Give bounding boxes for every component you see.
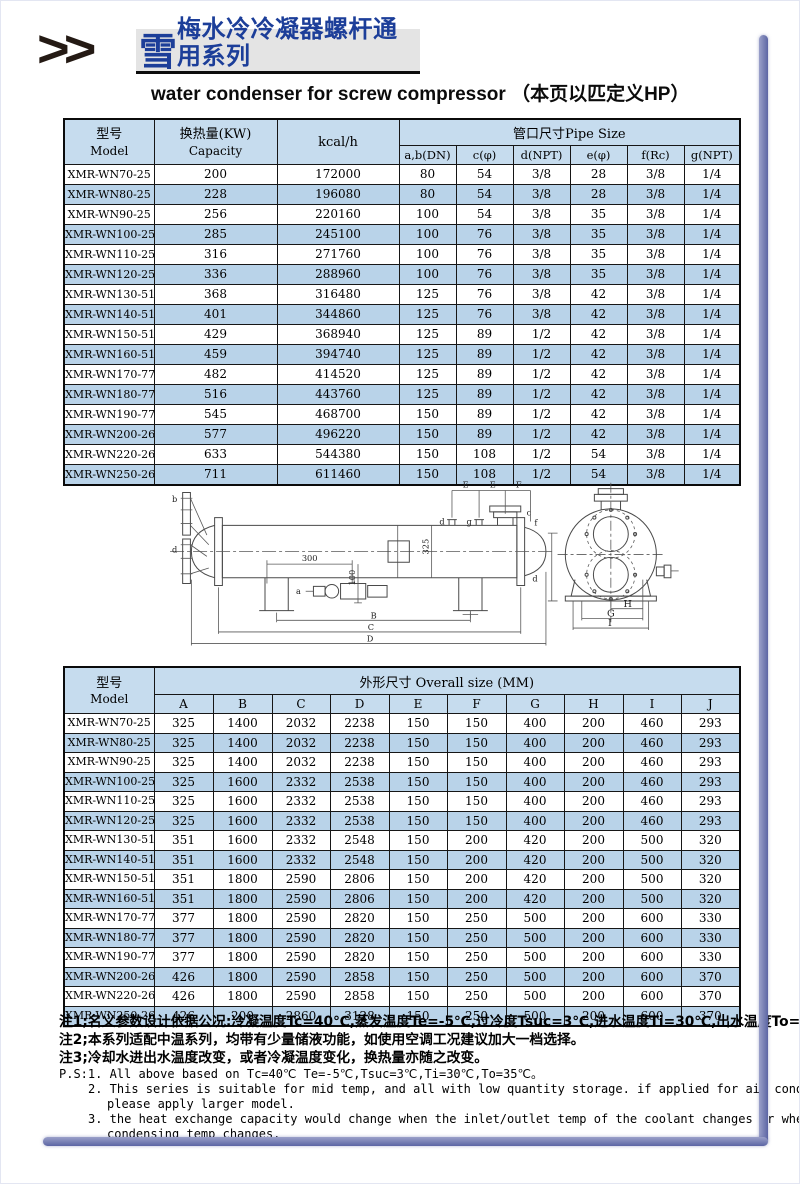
table-cell: 150	[399, 405, 456, 425]
table-cell: XMR-WN100-25	[64, 225, 154, 245]
dim-100: 100	[347, 570, 357, 586]
table-cell: 54	[570, 445, 627, 465]
table-cell: XMR-WN140-51	[64, 305, 154, 325]
brand-character: 雪	[139, 34, 177, 71]
table-cell: 3/8	[627, 185, 684, 205]
table-cell: 2590	[272, 967, 330, 987]
dim-300: 300	[302, 553, 318, 563]
table-cell: XMR-WN110-25	[64, 792, 154, 812]
note-en-3: please apply larger model.	[59, 1097, 753, 1112]
column-header-model: 型号 Model	[64, 119, 154, 165]
table-cell: XMR-WN200-26	[64, 967, 154, 987]
table-cell: 400	[506, 792, 564, 812]
table-cell: 200	[564, 987, 623, 1007]
table-cell: 344860	[277, 305, 399, 325]
table-cell: 2858	[330, 987, 389, 1007]
table-cell: XMR-WN80-25	[64, 733, 154, 753]
table-cell: 1/2	[513, 445, 570, 465]
dim-C: C	[368, 622, 374, 632]
table-row: XMR-WN120-253251600233225381501504002004…	[64, 811, 740, 831]
table-cell: 2538	[330, 811, 389, 831]
table-cell: 196080	[277, 185, 399, 205]
table-cell: 200	[564, 792, 623, 812]
table-cell: 35	[570, 205, 627, 225]
table-cell: 2820	[330, 948, 389, 968]
model-label-cn: 型号	[65, 126, 154, 144]
table-cell: 426	[154, 967, 213, 987]
table-cell: 1/4	[684, 265, 740, 285]
table-cell: 401	[154, 305, 277, 325]
table-cell: 2820	[330, 928, 389, 948]
table-cell: 1/4	[684, 245, 740, 265]
overall-size-group-header: 外形尺寸 Overall size (MM)	[154, 667, 740, 695]
table-cell: 1800	[213, 967, 272, 987]
table-cell: 3/8	[627, 385, 684, 405]
port-label-d-left: d	[172, 545, 178, 555]
table-cell: 1600	[213, 792, 272, 812]
table-cell: 125	[399, 345, 456, 365]
table-cell: 80	[399, 185, 456, 205]
model-label-cn: 型号	[65, 675, 154, 693]
table-cell: 150	[389, 792, 447, 812]
table-cell: 228	[154, 185, 277, 205]
table-cell: 2538	[330, 792, 389, 812]
dim-H: H	[623, 599, 631, 610]
column-header: E	[389, 695, 447, 714]
table-cell: 3/8	[627, 305, 684, 325]
table-cell: 600	[623, 967, 681, 987]
table-cell: 3/8	[627, 165, 684, 185]
table-cell: 320	[681, 831, 740, 851]
table-cell: 250	[447, 909, 506, 929]
table-cell: 320	[681, 870, 740, 890]
column-header: c(φ)	[456, 146, 513, 165]
table-cell: 2238	[330, 753, 389, 773]
table-row: XMR-WN160-51459394740125891/2423/81/4	[64, 345, 740, 365]
overall-table-body: XMR-WN70-2532514002032223815015040020046…	[64, 714, 740, 1027]
table-cell: 400	[506, 714, 564, 734]
table-cell: XMR-WN180-77	[64, 928, 154, 948]
table-cell: XMR-WN190-77	[64, 948, 154, 968]
table-cell: 316480	[277, 285, 399, 305]
table-cell: 400	[506, 733, 564, 753]
table-cell: 42	[570, 285, 627, 305]
table-cell: 89	[456, 325, 513, 345]
table-cell: 460	[623, 811, 681, 831]
table-cell: 336	[154, 265, 277, 285]
table-cell: 1800	[213, 928, 272, 948]
page-title: 雪 梅水冷冷凝器螺杆通用系列	[136, 29, 420, 74]
table-row: XMR-WN90-25256220160100543/8353/81/4	[64, 205, 740, 225]
port-label-d-top: d	[439, 516, 445, 526]
table-cell: 3/8	[513, 285, 570, 305]
table-cell: 200	[154, 165, 277, 185]
decorative-frame-bottom	[43, 1137, 768, 1146]
table-cell: 2590	[272, 948, 330, 968]
table-cell: 200	[564, 733, 623, 753]
table-cell: 200	[564, 909, 623, 929]
table-cell: 125	[399, 385, 456, 405]
notes-block: 注1;名义参数设计依据公况:冷凝温度Tc=40℃,蒸发温度Te=-5℃,过冷度T…	[59, 1013, 753, 1142]
table-cell: 3/8	[513, 225, 570, 245]
dim-B: B	[371, 610, 377, 620]
table-cell: 76	[456, 285, 513, 305]
chevron-decoration: >>	[37, 23, 90, 75]
table-cell: 200	[564, 714, 623, 734]
table-cell: 496220	[277, 425, 399, 445]
table-cell: 500	[506, 967, 564, 987]
table-row: XMR-WN220-266335443801501081/2543/81/4	[64, 445, 740, 465]
table-cell: 1/2	[513, 325, 570, 345]
capacity-label-cn: 换热量(KW)	[155, 126, 277, 144]
table-cell: 1800	[213, 889, 272, 909]
table-cell: 1/4	[684, 205, 740, 225]
table-cell: 89	[456, 405, 513, 425]
table-cell: XMR-WN70-25	[64, 165, 154, 185]
column-header: D	[330, 695, 389, 714]
table-cell: XMR-WN130-51	[64, 831, 154, 851]
table-cell: 42	[570, 385, 627, 405]
table-cell: 285	[154, 225, 277, 245]
table-cell: 245100	[277, 225, 399, 245]
table-cell: 89	[456, 345, 513, 365]
table-cell: 370	[681, 967, 740, 987]
table-cell: 293	[681, 714, 740, 734]
column-header: d(NPT)	[513, 146, 570, 165]
column-header: f(Rc)	[627, 146, 684, 165]
table-cell: 377	[154, 909, 213, 929]
table-cell: 2332	[272, 772, 330, 792]
table-cell: 150	[447, 772, 506, 792]
table-cell: 125	[399, 305, 456, 325]
table-cell: 2590	[272, 928, 330, 948]
table-cell: 200	[564, 831, 623, 851]
table-cell: 293	[681, 733, 740, 753]
dim-E1: E	[463, 480, 469, 490]
table-cell: 150	[389, 753, 447, 773]
table-cell: 500	[623, 831, 681, 851]
table-cell: 2806	[330, 889, 389, 909]
end-view: H G I	[548, 483, 679, 630]
table-cell: 76	[456, 245, 513, 265]
table-row: XMR-WN90-2532514002032223815015040020046…	[64, 753, 740, 773]
table-cell: 293	[681, 811, 740, 831]
table-cell: 460	[623, 753, 681, 773]
table-cell: 1/2	[513, 345, 570, 365]
column-header: C	[272, 695, 330, 714]
port-label-a: a	[296, 586, 301, 596]
column-header: B	[213, 695, 272, 714]
table-cell: 108	[456, 445, 513, 465]
table-cell: 368	[154, 285, 277, 305]
table-cell: 35	[570, 225, 627, 245]
table-cell: 1800	[213, 987, 272, 1007]
table-cell: XMR-WN180-77	[64, 385, 154, 405]
table-cell: 150	[389, 811, 447, 831]
table-cell: 459	[154, 345, 277, 365]
table-cell: 2538	[330, 772, 389, 792]
table-cell: 2548	[330, 850, 389, 870]
table-cell: 1400	[213, 733, 272, 753]
table-cell: 100	[399, 205, 456, 225]
table-row: XMR-WN140-513511600233225481502004202005…	[64, 850, 740, 870]
column-header: g(NPT)	[684, 146, 740, 165]
table-cell: 600	[623, 909, 681, 929]
table-cell: 150	[447, 733, 506, 753]
table-cell: 482	[154, 365, 277, 385]
table-cell: 394740	[277, 345, 399, 365]
table-cell: 600	[623, 948, 681, 968]
table-cell: XMR-WN190-77	[64, 405, 154, 425]
table-cell: 250	[447, 928, 506, 948]
table-cell: 460	[623, 733, 681, 753]
table-cell: 293	[681, 772, 740, 792]
table-cell: 2806	[330, 870, 389, 890]
table-cell: 325	[154, 753, 213, 773]
table-cell: 370	[681, 987, 740, 1007]
table-cell: 1/4	[684, 365, 740, 385]
table-cell: 150	[389, 870, 447, 890]
table-cell: 150	[399, 425, 456, 445]
table-cell: 200	[447, 870, 506, 890]
table-cell: 420	[506, 831, 564, 851]
table-cell: 2590	[272, 909, 330, 929]
table-cell: 1800	[213, 948, 272, 968]
note-en-1: P.S:1. All above based on Tc=40℃ Te=-5℃,…	[59, 1067, 753, 1082]
table-cell: 330	[681, 909, 740, 929]
table-cell: 200	[564, 811, 623, 831]
column-header: a,b(DN)	[399, 146, 456, 165]
table-cell: XMR-WN220-26	[64, 987, 154, 1007]
table-cell: 500	[623, 850, 681, 870]
table-cell: XMR-WN120-25	[64, 811, 154, 831]
table-row: XMR-WN220-264261800259028581502505002006…	[64, 987, 740, 1007]
column-header-kcal: kcal/h	[277, 119, 399, 165]
table-cell: 2332	[272, 850, 330, 870]
table-cell: 500	[623, 870, 681, 890]
table-row: XMR-WN200-264261800259028581502505002006…	[64, 967, 740, 987]
table-row: XMR-WN150-513511800259028061502004202005…	[64, 870, 740, 890]
table-cell: XMR-WN200-26	[64, 425, 154, 445]
table-row: XMR-WN70-2520017200080543/8283/81/4	[64, 165, 740, 185]
table-cell: 2032	[272, 753, 330, 773]
table-cell: 368940	[277, 325, 399, 345]
table-cell: 420	[506, 889, 564, 909]
table-cell: 500	[506, 948, 564, 968]
table-cell: 150	[389, 889, 447, 909]
table-cell: 351	[154, 831, 213, 851]
table-cell: 2238	[330, 733, 389, 753]
table-cell: 200	[564, 753, 623, 773]
page-title-cn: 梅水冷冷凝器螺杆通用系列	[177, 16, 417, 71]
table-cell: 316	[154, 245, 277, 265]
table-cell: 1600	[213, 850, 272, 870]
table-cell: 150	[399, 445, 456, 465]
table-cell: 200	[447, 889, 506, 909]
table-cell: XMR-WN80-25	[64, 185, 154, 205]
table-row: XMR-WN180-77516443760125891/2423/81/4	[64, 385, 740, 405]
table-cell: 3/8	[513, 205, 570, 225]
note-cn-3: 注3;冷却水进出水温度改变，或者冷凝温度变化，换热量亦随之改变。	[59, 1049, 753, 1067]
note-en-4: 3. the heat exchange capacity would chan…	[59, 1112, 753, 1127]
table-cell: 377	[154, 928, 213, 948]
table-cell: 545	[154, 405, 277, 425]
table-cell: 3/8	[627, 445, 684, 465]
overall-size-table: 型号 Model 外形尺寸 Overall size (MM) ABCDEFGH…	[63, 666, 741, 1027]
table-cell: 271760	[277, 245, 399, 265]
column-header: G	[506, 695, 564, 714]
table-cell: 150	[389, 850, 447, 870]
table-cell: 443760	[277, 385, 399, 405]
port-label-f-right: f	[534, 517, 538, 527]
table-cell: XMR-WN170-77	[64, 365, 154, 385]
table-row: XMR-WN110-253251600233225381501504002004…	[64, 792, 740, 812]
table-cell: 600	[623, 928, 681, 948]
table-cell: 200	[564, 870, 623, 890]
table-cell: 150	[389, 909, 447, 929]
dim-E2: E	[490, 480, 496, 490]
side-view: b d a 300 100 325	[170, 480, 554, 646]
table-cell: XMR-WN150-51	[64, 325, 154, 345]
table-cell: XMR-WN100-25	[64, 772, 154, 792]
capacity-table: 型号 Model 换热量(KW) Capacity kcal/h 管口尺寸Pip…	[63, 118, 741, 486]
table-cell: 2590	[272, 987, 330, 1007]
table-cell: 150	[389, 948, 447, 968]
table-cell: XMR-WN120-25	[64, 265, 154, 285]
table-cell: 150	[389, 733, 447, 753]
table-cell: 3/8	[627, 205, 684, 225]
table-cell: 1/4	[684, 425, 740, 445]
table-cell: 100	[399, 265, 456, 285]
table-cell: 500	[506, 928, 564, 948]
table-cell: 460	[623, 772, 681, 792]
table-cell: 3/8	[513, 305, 570, 325]
table-cell: 1400	[213, 753, 272, 773]
table-row: XMR-WN80-2532514002032223815015040020046…	[64, 733, 740, 753]
table-cell: 200	[447, 850, 506, 870]
table-cell: 125	[399, 285, 456, 305]
model-label-en: Model	[65, 144, 154, 158]
table-cell: 500	[623, 889, 681, 909]
table-cell: 320	[681, 850, 740, 870]
table-cell: 200	[447, 831, 506, 851]
table-cell: 200	[564, 948, 623, 968]
table-cell: XMR-WN160-51	[64, 345, 154, 365]
note-cn-2: 注2;本系列适配中温系列，均带有少量储液功能，如使用空调工况建议加大一档选择。	[59, 1031, 753, 1049]
table-cell: 80	[399, 165, 456, 185]
table-cell: 200	[564, 928, 623, 948]
table-cell: 1/4	[684, 385, 740, 405]
table-cell: 28	[570, 165, 627, 185]
table-cell: 42	[570, 365, 627, 385]
note-en-2: 2. This series is suitable for mid temp,…	[59, 1082, 753, 1097]
table-cell: XMR-WN140-51	[64, 850, 154, 870]
table-cell: 1/4	[684, 225, 740, 245]
table-cell: 2332	[272, 811, 330, 831]
table-cell: 172000	[277, 165, 399, 185]
table-row: XMR-WN100-253251600233225381501504002004…	[64, 772, 740, 792]
table-cell: XMR-WN150-51	[64, 870, 154, 890]
column-header: e(φ)	[570, 146, 627, 165]
table-cell: 429	[154, 325, 277, 345]
table-cell: 1/4	[684, 325, 740, 345]
table-row: XMR-WN110-25316271760100763/8353/81/4	[64, 245, 740, 265]
table-cell: 89	[456, 365, 513, 385]
table-cell: 200	[564, 889, 623, 909]
catalog-page: >> 雪 梅水冷冷凝器螺杆通用系列 water condenser for sc…	[0, 0, 800, 1184]
table-row: XMR-WN170-773771800259028201502505002006…	[64, 909, 740, 929]
table-cell: 3/8	[627, 225, 684, 245]
column-header-capacity: 换热量(KW) Capacity	[154, 119, 277, 165]
dim-325: 325	[421, 539, 431, 555]
table-cell: 460	[623, 714, 681, 734]
column-header: J	[681, 695, 740, 714]
table-cell: 330	[681, 928, 740, 948]
table-row: XMR-WN170-77482414520125891/2423/81/4	[64, 365, 740, 385]
table-cell: XMR-WN70-25	[64, 714, 154, 734]
page-subtitle: water condenser for screw compressor （本页…	[151, 79, 689, 106]
table-cell: 89	[456, 425, 513, 445]
table-cell: 3/8	[627, 285, 684, 305]
port-label-d-right: d	[532, 574, 538, 584]
table-cell: 1/4	[684, 285, 740, 305]
table-cell: 3/8	[627, 325, 684, 345]
table-cell: 1/4	[684, 405, 740, 425]
table-cell: XMR-WN130-51	[64, 285, 154, 305]
decorative-frame-right	[759, 35, 768, 1143]
table-cell: 42	[570, 425, 627, 445]
table-cell: 600	[623, 987, 681, 1007]
model-label-en: Model	[65, 692, 154, 706]
table-cell: 42	[570, 405, 627, 425]
table-cell: 1/4	[684, 185, 740, 205]
table-cell: 250	[447, 967, 506, 987]
table-cell: 2032	[272, 714, 330, 734]
table-cell: 325	[154, 733, 213, 753]
table-cell: 1/4	[684, 445, 740, 465]
table-cell: XMR-WN90-25	[64, 753, 154, 773]
table-cell: 414520	[277, 365, 399, 385]
table-cell: 1600	[213, 772, 272, 792]
table-cell: 250	[447, 987, 506, 1007]
table-cell: 100	[399, 225, 456, 245]
table-cell: 293	[681, 792, 740, 812]
table-cell: 125	[399, 325, 456, 345]
table-cell: 3/8	[627, 405, 684, 425]
table-cell: 325	[154, 811, 213, 831]
table-row: XMR-WN120-25336288960100763/8353/81/4	[64, 265, 740, 285]
table-cell: 1800	[213, 909, 272, 929]
table-cell: 400	[506, 811, 564, 831]
table-cell: 1/4	[684, 305, 740, 325]
table-cell: 2590	[272, 870, 330, 890]
table-cell: XMR-WN160-51	[64, 889, 154, 909]
table-cell: 330	[681, 948, 740, 968]
table-cell: 76	[456, 265, 513, 285]
table-cell: 1/4	[684, 165, 740, 185]
port-label-b: b	[172, 494, 177, 504]
table-cell: 3/8	[627, 425, 684, 445]
table-cell: 420	[506, 870, 564, 890]
column-header: H	[564, 695, 623, 714]
table-cell: 293	[681, 753, 740, 773]
table-cell: 1400	[213, 714, 272, 734]
table-cell: 2332	[272, 792, 330, 812]
table-cell: 125	[399, 365, 456, 385]
table-row: XMR-WN70-2532514002032223815015040020046…	[64, 714, 740, 734]
table-cell: 256	[154, 205, 277, 225]
port-label-g-top: g	[467, 516, 473, 526]
